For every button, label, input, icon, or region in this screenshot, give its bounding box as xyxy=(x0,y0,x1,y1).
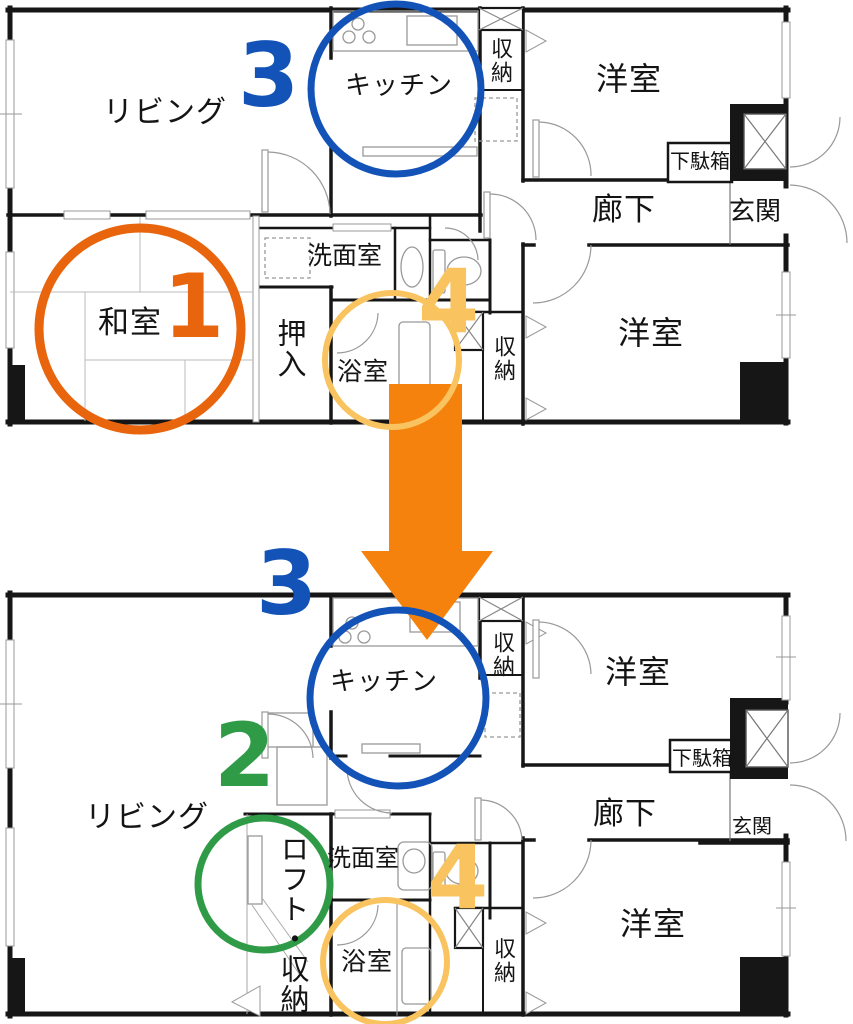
step3-number-after: 3 xyxy=(256,540,317,628)
room-label-storage-top-before: 収納 xyxy=(489,37,511,85)
room-label-western-bottom-before: 洋室 xyxy=(618,317,684,349)
step4-number-before: 4 xyxy=(418,258,479,346)
pillar xyxy=(740,957,787,1015)
stove-burner xyxy=(363,31,375,43)
step2-circle-after xyxy=(198,818,330,950)
step3-number-before: 3 xyxy=(238,32,299,120)
stove-burner xyxy=(358,631,370,643)
cabinet xyxy=(277,747,327,805)
room-label-entrance-after: 玄関 xyxy=(732,817,772,837)
room-label-bathroom-after: 浴室 xyxy=(341,950,393,975)
room-label-western-top-after: 洋室 xyxy=(605,656,671,688)
room-label-kitchen-after: キッチン xyxy=(330,668,438,694)
stove-burner xyxy=(343,31,355,43)
room-label-hallway-after: 廊下 xyxy=(593,798,657,829)
room-label-living-after: リビング xyxy=(85,803,209,833)
room-label-loft-storage-after: ロフト・収納 xyxy=(277,834,306,1014)
room-label-storage-bottom-before: 収納 xyxy=(492,335,514,383)
pillar xyxy=(8,958,25,1014)
room-label-storage-bottom-after: 収納 xyxy=(492,937,514,985)
room-label-western-bottom-after: 洋室 xyxy=(620,908,686,940)
room-label-entrance-before: 玄関 xyxy=(729,198,781,224)
bathtub xyxy=(402,948,431,1004)
room-label-kitchen-before: キッチン xyxy=(345,72,453,98)
step3-circle-after xyxy=(310,610,486,786)
washbasin xyxy=(403,849,425,873)
loft-stairs xyxy=(248,836,262,904)
room-label-western-top-before: 洋室 xyxy=(596,63,662,95)
step1-number-before: 1 xyxy=(163,263,224,351)
counter xyxy=(362,744,420,753)
step4-number-after: 4 xyxy=(427,834,488,922)
room-label-washroom-before: 洗面室 xyxy=(307,244,382,269)
renovation-floorplan-diagram: リビング キッチン 収納 洋室 下駄箱 廊下 玄関 和室 押入 洗面室 浴室 収… xyxy=(0,0,853,1024)
step2-number-after: 2 xyxy=(214,712,275,800)
room-label-hallway-before: 廊下 xyxy=(592,194,656,225)
refrigerator-space xyxy=(485,693,520,737)
room-label-closet-before: 押入 xyxy=(274,318,303,380)
room-label-shoe-cabinet-after: 下駄箱 xyxy=(672,749,732,769)
pillar xyxy=(8,365,25,422)
room-label-storage-top-after: 収納 xyxy=(491,631,513,679)
stove-burner xyxy=(352,18,364,30)
washer-space xyxy=(265,238,310,278)
room-label-washroom-after: 洗面室 xyxy=(327,847,399,871)
room-label-japanese-room-before: 和室 xyxy=(98,307,162,338)
room-label-living-before: リビング xyxy=(103,98,227,128)
pillar xyxy=(740,362,787,422)
room-label-bathroom-before: 浴室 xyxy=(337,360,389,385)
room-label-shoe-cabinet-before: 下駄箱 xyxy=(670,152,730,172)
